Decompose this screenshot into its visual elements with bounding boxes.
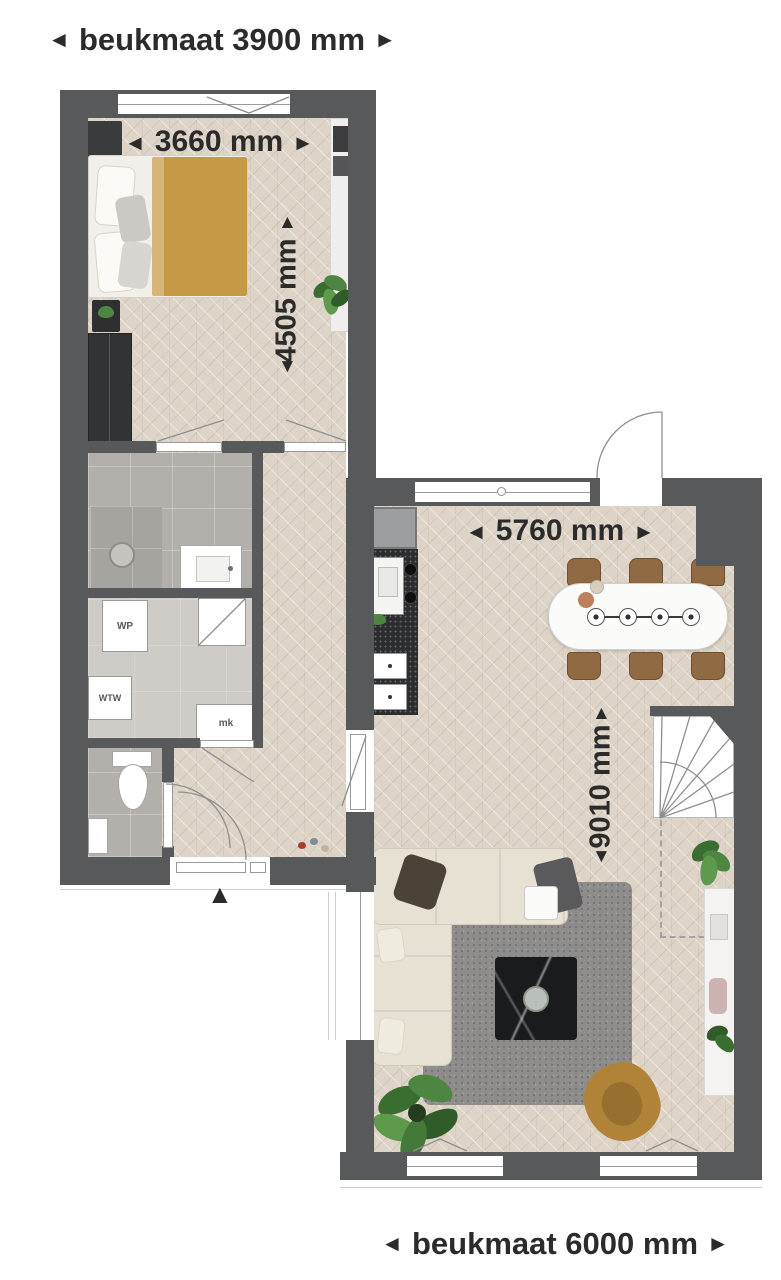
pendant-light-1: [587, 608, 605, 626]
hob-burner-1: [404, 563, 417, 576]
meter-cupboard: mk: [196, 704, 256, 742]
dim-beukmaat-bottom-text: beukmaat 6000 mm: [412, 1228, 698, 1259]
dining-table: [548, 583, 728, 650]
dim-bedroom-width-text: 3660 mm: [155, 127, 283, 157]
heat-pump-unit: WP: [102, 600, 148, 652]
appliance-handle-2: [388, 695, 392, 699]
sideboard-decor-pink: [709, 978, 727, 1014]
sofa-side-table: [524, 886, 558, 920]
paving-line-west-window-2: [335, 892, 336, 1040]
wc-basin: [88, 818, 108, 854]
dim-arrow-left: ◄: [465, 521, 486, 543]
dining-chair-2: [629, 558, 663, 586]
dim-bedroom-depth-arrow-down: ▼: [278, 357, 297, 376]
living-window-south-1: [407, 1156, 503, 1176]
wall-northeast-corner-block: [696, 478, 762, 566]
dim-living-depth-arrow-down: ▼: [592, 847, 611, 866]
dining-chair-6: [691, 652, 725, 680]
living-window-south-2: [600, 1156, 697, 1176]
bedroom-door-leaf: [284, 442, 346, 452]
table-bowl-2: [590, 580, 604, 594]
hall-shoes-3: [321, 845, 329, 852]
wall-bedroom-south-b: [222, 441, 284, 453]
fridge: [369, 507, 417, 549]
dim-beukmaat-top: ◄beukmaat 3900 mm►: [12, 24, 432, 55]
paving-line-south-left-wing: [60, 889, 348, 890]
kitchen-sink-basin: [378, 567, 398, 597]
wall-bedroom-south-a: [88, 441, 156, 453]
dim-living-width: ◄5760 mm►: [420, 516, 700, 546]
wall-south-living: [340, 1152, 762, 1180]
washbasin-bowl: [196, 556, 230, 582]
dim-bedroom-depth-text: 4505 mm: [273, 238, 302, 362]
stairs-area: [653, 716, 734, 818]
bed-duvet: [152, 157, 247, 296]
meter-cupboard-label: mk: [219, 718, 233, 729]
hall-shoes-2: [310, 838, 318, 845]
dim-arrow-right: ►: [707, 1233, 729, 1255]
dim-arrow-left: ◄: [124, 132, 145, 154]
hall-shoes-1: [298, 842, 306, 849]
wall-east-left-wing: [348, 90, 376, 480]
wall-bathroom-south: [88, 588, 252, 598]
tech-room-door-leaf: [198, 598, 246, 646]
kitchen-appliance-2: [373, 684, 407, 710]
entrance-marker: ▲: [207, 881, 233, 907]
bedroom-window: [118, 94, 290, 114]
bedside-plant: [98, 306, 114, 318]
meter-cupboard-door-leaf: [200, 740, 254, 748]
sofa-pillow-1: [376, 926, 406, 963]
dim-arrow-right: ►: [374, 29, 396, 51]
appliance-handle-1: [388, 664, 392, 668]
front-door-side-pane: [250, 862, 266, 873]
pendant-light-2: [619, 608, 637, 626]
wall-west-left-wing: [60, 90, 88, 885]
heat-pump-label: WP: [117, 621, 133, 632]
hob-burner-2: [404, 591, 417, 604]
wall-east-living: [734, 478, 762, 1180]
wall-stairs-north: [650, 706, 734, 716]
floor-plan-canvas: WP WTW mk: [0, 0, 781, 1280]
bed-pillow-4: [117, 240, 153, 290]
wall-bathroom-east: [252, 453, 263, 738]
garden-door-swing: [597, 412, 662, 478]
front-door-leaf: [176, 862, 246, 873]
pendant-light-3: [651, 608, 669, 626]
dim-living-width-text: 5760 mm: [496, 516, 624, 546]
heat-recovery-label: WTW: [99, 693, 122, 703]
bathroom-door-leaf: [156, 442, 222, 452]
dim-arrow-right: ►: [633, 521, 654, 543]
dining-window-handle: [497, 487, 506, 496]
dim-arrow-left: ◄: [48, 29, 70, 51]
living-plant-pot: [408, 1104, 426, 1122]
paving-line-south-living: [340, 1187, 762, 1188]
sideboard-decor-vase: [710, 914, 728, 940]
dim-living-depth: 9010 mm: [587, 712, 616, 862]
dim-living-depth-text: 9010 mm: [587, 724, 616, 848]
dim-arrow-right: ►: [292, 132, 313, 154]
sofa-pillow-2: [376, 1017, 406, 1056]
wall-tech-south-a: [88, 738, 200, 748]
table-bowl-1: [578, 592, 594, 608]
dim-bedroom-depth: 4505 mm: [273, 226, 302, 376]
living-window-west: [346, 892, 374, 1040]
dim-bedroom-width: ◄3660 mm►: [89, 127, 349, 157]
wall-west-living-a: [346, 506, 374, 730]
hall-living-door-leaf: [350, 734, 366, 810]
garden-door-opening: [600, 478, 662, 506]
dim-beukmaat-top-text: beukmaat 3900 mm: [79, 24, 365, 55]
heat-recovery-unit: WTW: [88, 676, 132, 720]
kitchen-appliance-1: [373, 653, 407, 679]
wardrobe: [88, 333, 132, 443]
dining-chair-5: [629, 652, 663, 680]
wall-wc-east-a: [162, 748, 174, 782]
wall-west-living-c: [346, 1040, 374, 1152]
shower-head: [109, 542, 135, 568]
paving-line-west-window-1: [328, 892, 329, 1040]
pendant-light-4: [682, 608, 700, 626]
wc-door-leaf: [163, 782, 173, 848]
dim-beukmaat-bottom: ◄beukmaat 6000 mm►: [335, 1228, 775, 1259]
dining-chair-4: [567, 652, 601, 680]
washbasin-tap: [228, 566, 233, 571]
coffee-table-decor: [523, 986, 549, 1012]
wall-west-living-b: [346, 812, 374, 892]
dim-arrow-left: ◄: [381, 1233, 403, 1255]
